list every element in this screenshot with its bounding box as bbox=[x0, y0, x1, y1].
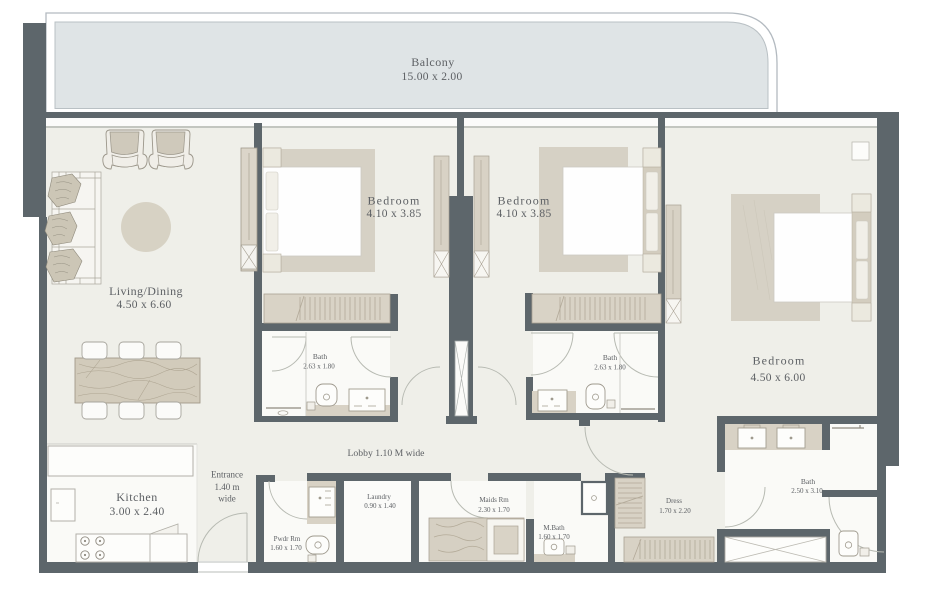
svg-text:Dress: Dress bbox=[666, 497, 682, 505]
svg-text:Pwdr Rm: Pwdr Rm bbox=[274, 535, 301, 543]
svg-text:Entrance: Entrance bbox=[211, 470, 243, 480]
svg-text:4.50 x 6.60: 4.50 x 6.60 bbox=[116, 299, 171, 311]
svg-text:Bedroom: Bedroom bbox=[367, 194, 420, 208]
svg-text:Laundry: Laundry bbox=[367, 493, 391, 501]
svg-text:2.63 x 1.80: 2.63 x 1.80 bbox=[303, 363, 335, 371]
svg-text:Bath: Bath bbox=[313, 352, 327, 361]
svg-text:Kitchen: Kitchen bbox=[116, 490, 158, 504]
svg-text:Bath: Bath bbox=[801, 477, 815, 486]
svg-text:Lobby 1.10 M wide: Lobby 1.10 M wide bbox=[348, 448, 425, 459]
svg-text:0.90 x 1.40: 0.90 x 1.40 bbox=[364, 502, 396, 510]
svg-text:1.70 x 2.20: 1.70 x 2.20 bbox=[659, 507, 691, 515]
svg-text:Bedroom: Bedroom bbox=[752, 354, 805, 368]
svg-text:1.40 m: 1.40 m bbox=[214, 482, 239, 492]
svg-text:3.00 x 2.40: 3.00 x 2.40 bbox=[109, 506, 164, 518]
svg-text:15.00 x 2.00: 15.00 x 2.00 bbox=[401, 71, 462, 83]
svg-text:Balcony: Balcony bbox=[411, 55, 455, 69]
svg-text:2.30 x 1.70: 2.30 x 1.70 bbox=[478, 506, 510, 514]
svg-text:1.60 x 1.70: 1.60 x 1.70 bbox=[538, 533, 570, 541]
svg-text:wide: wide bbox=[218, 494, 236, 504]
svg-text:4.10 x 3.85: 4.10 x 3.85 bbox=[366, 208, 421, 220]
svg-text:Bath: Bath bbox=[603, 353, 617, 362]
svg-text:Bedroom: Bedroom bbox=[497, 194, 550, 208]
svg-text:1.60 x 1.70: 1.60 x 1.70 bbox=[270, 544, 302, 552]
svg-text:Maids Rm: Maids Rm bbox=[479, 496, 509, 504]
svg-text:2.50 x 3.10: 2.50 x 3.10 bbox=[791, 487, 823, 495]
svg-text:4.50 x 6.00: 4.50 x 6.00 bbox=[750, 372, 805, 384]
svg-text:Living/Dining: Living/Dining bbox=[109, 284, 183, 298]
svg-text:M.Bath: M.Bath bbox=[543, 524, 565, 532]
svg-text:4.10 x 3.85: 4.10 x 3.85 bbox=[496, 208, 551, 220]
svg-text:2.63 x 1.80: 2.63 x 1.80 bbox=[594, 364, 626, 372]
